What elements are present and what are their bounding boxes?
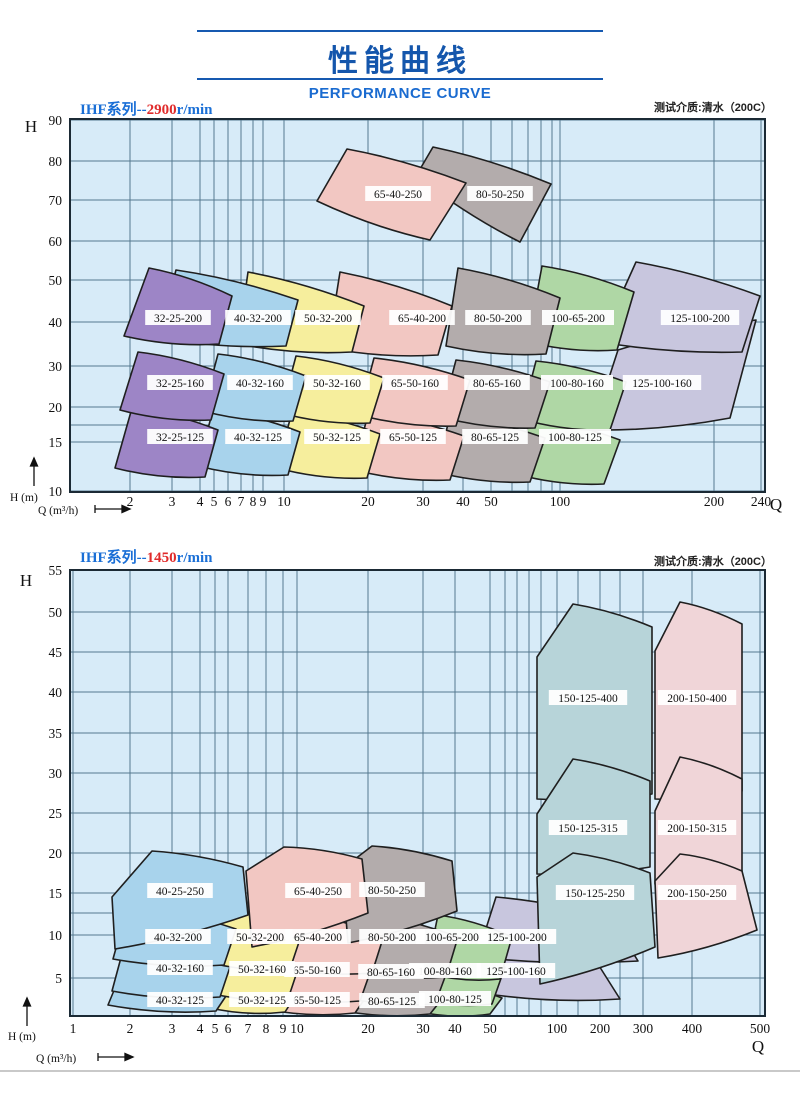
y-tick-label: 35 xyxy=(49,726,63,741)
x-tick-label: 5 xyxy=(212,1021,219,1036)
x-tick-label: 400 xyxy=(682,1021,703,1036)
region-label: 40-32-200 xyxy=(154,932,202,944)
y-tick-label: 50 xyxy=(49,605,63,620)
y-tick-label: 80 xyxy=(49,154,63,169)
y-tick-label: 15 xyxy=(49,435,63,450)
region-label: 125-100-200 xyxy=(670,313,730,325)
region-label: 80-50-250 xyxy=(368,885,416,897)
x-tick-label: 9 xyxy=(280,1021,287,1036)
region-label: 200-150-400 xyxy=(667,693,727,705)
y-tick-label: 20 xyxy=(49,846,63,861)
x-tick-label: 3 xyxy=(169,494,176,509)
region-label: 50-32-160 xyxy=(238,964,286,976)
region-label: 32-25-200 xyxy=(154,313,202,325)
region-label: 80-50-250 xyxy=(476,189,524,201)
x-tick-label: 30 xyxy=(416,494,430,509)
region-label: 80-65-125 xyxy=(368,996,416,1008)
region-label: 50-32-125 xyxy=(238,995,286,1007)
y-tick-label: 10 xyxy=(49,928,63,943)
x-tick-label: 6 xyxy=(225,1021,232,1036)
region-label: 100-80-125 xyxy=(428,994,482,1006)
y-axis-unit-label: H (m) xyxy=(8,1031,36,1043)
region-label: 100-80-125 xyxy=(548,432,602,444)
region-label: 80-50-200 xyxy=(368,932,416,944)
x-tick-label: 10 xyxy=(290,1021,304,1036)
region-label: 100-65-200 xyxy=(551,313,605,325)
region-label: 40-25-250 xyxy=(156,886,204,898)
x-tick-label: 200 xyxy=(590,1021,611,1036)
x-tick-label: 20 xyxy=(361,494,375,509)
region-label: 65-50-125 xyxy=(389,432,437,444)
y-tick-label: 45 xyxy=(49,645,63,660)
x-tick-label: 50 xyxy=(483,1021,497,1036)
x-axis-letter: Q xyxy=(770,495,782,514)
y-tick-label: 40 xyxy=(49,315,63,330)
y-tick-label: 25 xyxy=(49,806,63,821)
x-tick-label: 10 xyxy=(277,494,291,509)
x-tick-label: 300 xyxy=(633,1021,654,1036)
x-tick-label: 7 xyxy=(238,494,245,509)
performance-charts-svg: 100-80-12580-65-12565-50-12550-32-12540-… xyxy=(0,0,800,1098)
x-tick-label: 2 xyxy=(127,494,134,509)
region-label: 125-100-160 xyxy=(632,378,692,390)
y-tick-label: 55 xyxy=(49,563,63,578)
region-label: 125-100-160 xyxy=(486,966,546,978)
region-label: 65-40-200 xyxy=(294,932,342,944)
region-label: 50-32-125 xyxy=(313,432,361,444)
y-tick-label: 50 xyxy=(49,273,63,288)
region-label: 125-100-200 xyxy=(487,932,547,944)
x-tick-label: 3 xyxy=(169,1021,176,1036)
x-tick-label: 5 xyxy=(211,494,218,509)
x-tick-label: 1 xyxy=(70,1021,77,1036)
region-label: 65-40-250 xyxy=(374,189,422,201)
y-tick-label: 40 xyxy=(49,685,63,700)
x-tick-label: 4 xyxy=(197,494,204,509)
x-axis-unit-label: Q (m³/h) xyxy=(38,505,78,517)
region-label: 150-125-250 xyxy=(565,888,625,900)
x-tick-label: 200 xyxy=(704,494,725,509)
region-label: 32-25-160 xyxy=(156,378,204,390)
x-tick-label: 50 xyxy=(484,494,498,509)
region-label: 150-125-315 xyxy=(558,823,618,835)
region-label: 100-65-200 xyxy=(425,932,479,944)
region-label: 40-32-125 xyxy=(234,432,282,444)
region-label: 50-32-200 xyxy=(236,932,284,944)
y-tick-label: 60 xyxy=(49,234,63,249)
y-tick-label: 20 xyxy=(49,400,63,415)
region-label: 40-32-160 xyxy=(236,378,284,390)
x-tick-label: 500 xyxy=(750,1021,771,1036)
region-label: 80-65-160 xyxy=(473,378,521,390)
x-tick-label: 30 xyxy=(416,1021,430,1036)
x-tick-label: 20 xyxy=(361,1021,375,1036)
y-tick-label: 90 xyxy=(49,113,63,128)
y-tick-label: 10 xyxy=(49,484,63,499)
y-tick-label: 30 xyxy=(49,359,63,374)
y-tick-label: 15 xyxy=(49,886,63,901)
chart-2900: 100-80-12580-65-12565-50-12550-32-12540-… xyxy=(10,113,782,517)
x-tick-label: 100 xyxy=(550,494,571,509)
x-tick-label: 100 xyxy=(547,1021,568,1036)
region-label: 50-32-160 xyxy=(313,378,361,390)
region-label: 65-50-160 xyxy=(391,378,439,390)
x-tick-label: 6 xyxy=(225,494,232,509)
region-label: 200-150-250 xyxy=(667,888,727,900)
region-label: 50-32-200 xyxy=(304,313,352,325)
y-axis-letter: H xyxy=(20,571,32,590)
region-label: 32-25-125 xyxy=(156,432,204,444)
region-label: 200-150-315 xyxy=(667,823,727,835)
region-label: 65-40-250 xyxy=(294,886,342,898)
y-tick-label: 30 xyxy=(49,766,63,781)
x-tick-label: 4 xyxy=(197,1021,204,1036)
region-label: 40-32-200 xyxy=(234,313,282,325)
x-tick-label: 40 xyxy=(448,1021,462,1036)
region-label: 65-40-200 xyxy=(398,313,446,325)
region-label: 40-32-125 xyxy=(156,995,204,1007)
x-axis-letter: Q xyxy=(752,1037,764,1056)
footer-divider xyxy=(0,1070,800,1072)
region-label: 80-65-160 xyxy=(367,967,415,979)
x-tick-label: 7 xyxy=(245,1021,252,1036)
region-label: 100-80-160 xyxy=(550,378,604,390)
region-label: 100-80-160 xyxy=(418,966,472,978)
region-label: 80-65-125 xyxy=(471,432,519,444)
x-tick-label: 40 xyxy=(456,494,470,509)
catalog-page: 性能曲线 PERFORMANCE CURVE IHF系列--2900r/min … xyxy=(0,0,800,1098)
x-tick-label: 8 xyxy=(250,494,257,509)
region-label: 65-50-160 xyxy=(293,965,341,977)
x-tick-label: 240 xyxy=(751,494,772,509)
x-tick-label: 9 xyxy=(260,494,267,509)
x-tick-label: 2 xyxy=(127,1021,134,1036)
chart-1450: 100-80-12580-65-12565-50-12550-32-12540-… xyxy=(8,563,770,1065)
region-label: 40-32-160 xyxy=(156,963,204,975)
x-tick-label: 8 xyxy=(263,1021,270,1036)
y-axis-letter: H xyxy=(25,117,37,136)
region-label: 65-50-125 xyxy=(293,995,341,1007)
region-label: 80-50-200 xyxy=(474,313,522,325)
x-axis-unit-label: Q (m³/h) xyxy=(36,1053,76,1065)
y-tick-label: 5 xyxy=(55,971,62,986)
y-axis-unit-label: H (m) xyxy=(10,492,38,504)
region-label: 150-125-400 xyxy=(558,693,618,705)
y-tick-label: 70 xyxy=(49,193,63,208)
